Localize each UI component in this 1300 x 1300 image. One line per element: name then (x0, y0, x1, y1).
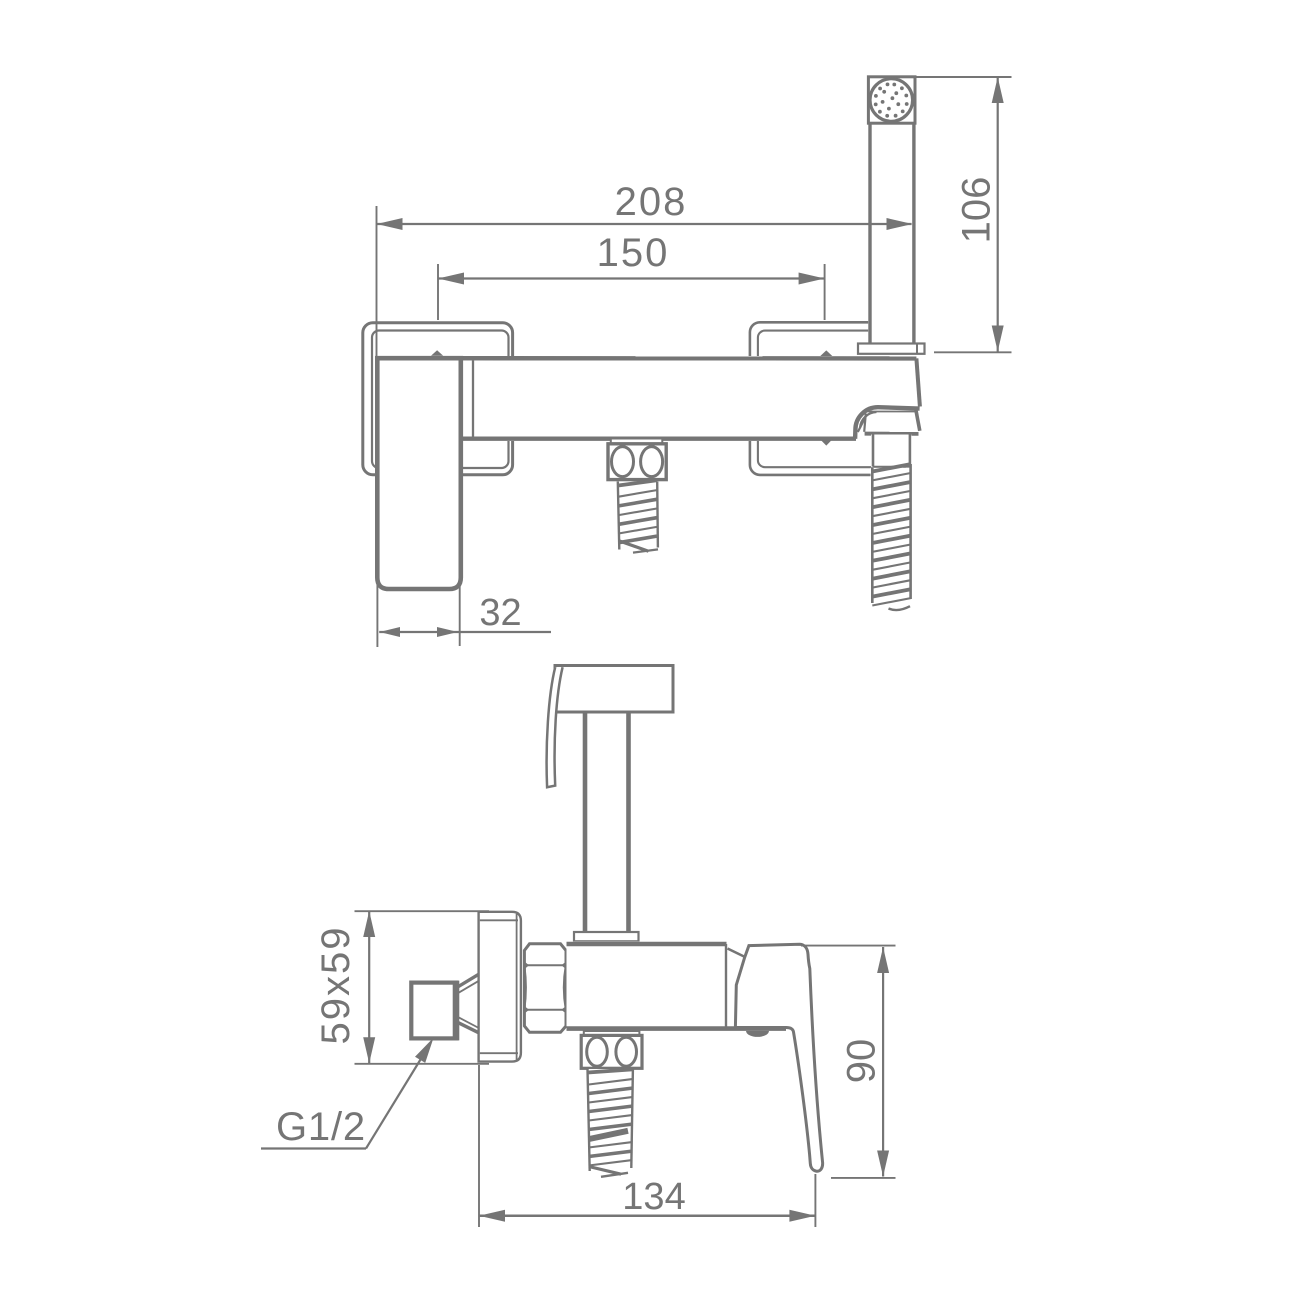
svg-text:59x59: 59x59 (314, 926, 358, 1045)
svg-text:90: 90 (840, 1039, 884, 1084)
svg-text:134: 134 (622, 1176, 685, 1218)
svg-text:G1/2: G1/2 (276, 1105, 366, 1149)
svg-text:208: 208 (615, 180, 688, 224)
svg-text:106: 106 (955, 177, 999, 244)
svg-text:32: 32 (479, 592, 521, 634)
svg-text:150: 150 (597, 231, 670, 275)
